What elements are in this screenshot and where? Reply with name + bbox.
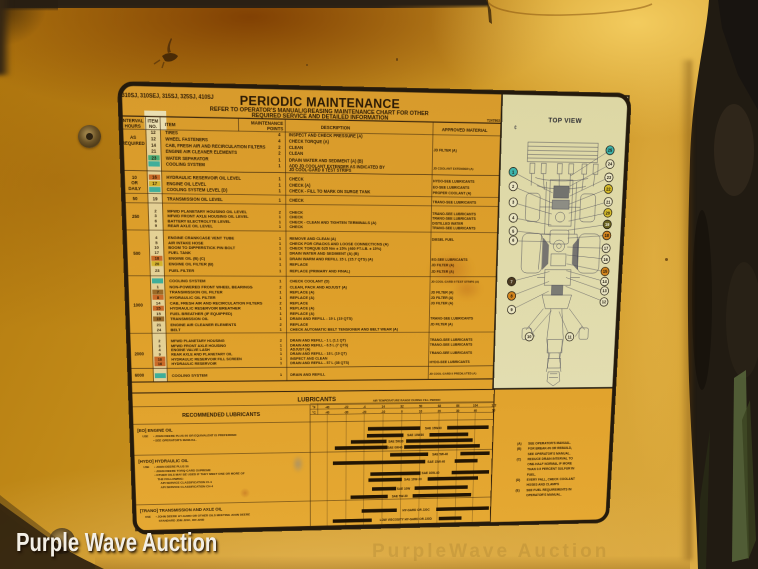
svg-text:21: 21	[157, 322, 162, 327]
svg-text:CAB, FRESH AIR AND RECIRCULATI: CAB, FRESH AIR AND RECIRCULATION FILTERS	[170, 301, 263, 306]
svg-text:SAE 15W40: SAE 15W40	[425, 426, 442, 430]
svg-text:20: 20	[606, 211, 611, 216]
svg-text:15: 15	[156, 311, 161, 316]
svg-text:TRANSMISSION OIL: TRANSMISSION OIL	[170, 317, 209, 322]
svg-text:CHECK: CHECK	[289, 177, 304, 182]
svg-text:POINTS: POINTS	[267, 126, 283, 131]
svg-text:-22: -22	[344, 405, 348, 409]
svg-text:-40: -40	[325, 411, 329, 415]
svg-text:15: 15	[156, 306, 161, 311]
svg-text:68: 68	[438, 404, 441, 408]
svg-text:-30: -30	[344, 411, 348, 415]
svg-text:32: 32	[400, 405, 403, 409]
svg-text:REPLACE (PRIMARY AND FINAL): REPLACE (PRIMARY AND FINAL)	[290, 269, 351, 274]
svg-text:HYDRAULIC RESERVOIR BREATHER: HYDRAULIC RESERVOIR BREATHER	[170, 306, 242, 311]
svg-text:REPLACE (A): REPLACE (A)	[290, 295, 315, 300]
svg-text:NO.: NO.	[149, 124, 157, 129]
svg-text:86: 86	[456, 404, 459, 407]
svg-text:ENGINE OIL (B) (C): ENGINE OIL (B) (C)	[168, 256, 205, 261]
svg-text:DRAIN AND REFILL - 57 L (38 QT: DRAIN AND REFILL - 57 L (38 QTS)	[290, 360, 349, 365]
svg-text:JD COOL-GARD II PREDILUTED (A): JD COOL-GARD II PREDILUTED (A)	[429, 372, 476, 376]
svg-text:-20: -20	[362, 411, 366, 415]
svg-text:122: 122	[491, 404, 496, 408]
svg-text:10: 10	[419, 410, 422, 414]
svg-text:• SEE OPERATOR'S MANUAL.: • SEE OPERATOR'S MANUAL.	[153, 438, 196, 442]
svg-text:11: 11	[568, 335, 573, 339]
svg-text:WHEEL FASTENERS: WHEEL FASTENERS	[165, 137, 208, 143]
svg-text:104: 104	[473, 404, 478, 408]
svg-text:FUEL BREATHER (IF EQUIPPED): FUEL BREATHER (IF EQUIPPED)	[170, 311, 233, 316]
svg-text:EO-SEE LUBRICANTS: EO-SEE LUBRICANTS	[433, 185, 470, 190]
svg-text:SAE 10W-30: SAE 10W-30	[404, 478, 422, 482]
svg-text:ENGINE OIL FILTER (B): ENGINE OIL FILTER (B)	[169, 261, 214, 266]
svg-text:REPLACE (A): REPLACE (A)	[290, 311, 315, 316]
svg-text:JD FILTER (A): JD FILTER (A)	[434, 148, 458, 153]
svg-text:TRANO-SEE LUBRICANTS: TRANO-SEE LUBRICANTS	[433, 200, 477, 205]
svg-text:SAE 0W40: SAE 0W40	[387, 446, 402, 450]
svg-text:CLEAN: CLEAN	[289, 145, 303, 150]
svg-text:TRANSMISSION OIL LEVEL: TRANSMISSION OIL LEVEL	[167, 197, 223, 202]
svg-text:REPLACE (A): REPLACE (A)	[290, 290, 315, 295]
svg-text:HYDRAULIC OIL FILTER: HYDRAULIC OIL FILTER	[170, 295, 217, 300]
svg-text:TRANO-SEE LUBRICANTS: TRANO-SEE LUBRICANTS	[430, 316, 473, 321]
svg-text:DAILY: DAILY	[128, 186, 141, 191]
svg-text:WATER SEPARATOR: WATER SEPARATOR	[166, 156, 209, 162]
svg-text:17: 17	[152, 181, 157, 186]
svg-text:20: 20	[438, 410, 441, 413]
svg-text:TRANO-SEE LUBRICANTS: TRANO-SEE LUBRICANTS	[430, 342, 473, 347]
svg-text:OR: OR	[131, 181, 138, 186]
svg-text:250: 250	[132, 214, 140, 219]
svg-text:HYDRAULIC RESERVOIR OIL LEVEL: HYDRAULIC RESERVOIR OIL LEVEL	[166, 175, 241, 181]
svg-text:RECOMMENDED LUBRICANTS: RECOMMENDED LUBRICANTS	[182, 412, 260, 418]
svg-text:25: 25	[608, 148, 613, 153]
svg-text:[EO] ENGINE OIL: [EO] ENGINE OIL	[137, 428, 173, 434]
svg-text:REPLACE: REPLACE	[290, 262, 308, 267]
svg-text:T247963: T247963	[487, 119, 500, 123]
svg-text:SAE 10W: SAE 10W	[397, 487, 411, 491]
svg-text:APPROVED MATERIAL: APPROVED MATERIAL	[442, 127, 488, 133]
svg-text:FUEL TANK: FUEL TANK	[168, 250, 191, 255]
svg-text:50: 50	[419, 405, 422, 409]
svg-text:SEE OPERATOR'S MANUAL.: SEE OPERATOR'S MANUAL.	[528, 441, 571, 445]
svg-text:REPLACE (A): REPLACE (A)	[290, 306, 315, 311]
svg-text:12: 12	[151, 130, 156, 135]
svg-text:14: 14	[151, 143, 156, 148]
svg-text:COOLING SYSTEM: COOLING SYSTEM	[172, 373, 208, 378]
svg-text:50: 50	[133, 196, 138, 201]
svg-text:SAE 10W-40: SAE 10W-40	[422, 471, 440, 475]
svg-text:(E): (E)	[515, 489, 520, 492]
svg-text:ITEM: ITEM	[147, 119, 158, 124]
svg-text:12: 12	[151, 136, 156, 141]
svg-text:21: 21	[606, 200, 611, 205]
svg-text:17: 17	[604, 246, 609, 251]
svg-text:COOLING SYSTEM LEVEL (D): COOLING SYSTEM LEVEL (D)	[167, 187, 228, 193]
svg-text:TRANO-SEE LUBRICANTS: TRANO-SEE LUBRICANTS	[432, 226, 476, 231]
svg-text:LUBRICANTS: LUBRICANTS	[297, 397, 336, 404]
svg-text:15: 15	[603, 269, 608, 273]
svg-text:COOLING SYSTEM: COOLING SYSTEM	[166, 162, 205, 167]
svg-text:PROPER COOLANT (A): PROPER COOLANT (A)	[433, 191, 472, 196]
svg-text:REPLACE: REPLACE	[290, 322, 308, 327]
svg-text:-40: -40	[325, 406, 329, 410]
svg-text:°C: °C	[312, 411, 316, 415]
svg-text:[HYDO] HYDRAULIC OIL: [HYDO] HYDRAULIC OIL	[138, 459, 188, 465]
svg-text:HOSES AND CLAMPS: HOSES AND CLAMPS	[526, 483, 559, 487]
svg-text:ITEM: ITEM	[165, 122, 176, 127]
svg-text:-10: -10	[381, 410, 385, 414]
svg-text:DRAIN AND REFILL: DRAIN AND REFILL	[290, 372, 325, 377]
svg-text:ENGINE AIR CLEANER ELEMENTS: ENGINE AIR CLEANER ELEMENTS	[170, 322, 236, 327]
svg-text:500: 500	[133, 251, 141, 256]
svg-text:0: 0	[401, 410, 403, 413]
svg-text:CHECK - FILL TO MARK ON SURGE: CHECK - FILL TO MARK ON SURGE TANK	[289, 189, 371, 195]
svg-text:AS: AS	[130, 135, 136, 140]
svg-text:REQUIRED: REQUIRED	[122, 141, 146, 146]
svg-text:24: 24	[157, 327, 162, 332]
svg-text:TRANO-SEE LUBRICANTS: TRANO-SEE LUBRICANTS	[430, 350, 473, 355]
svg-text:18: 18	[155, 256, 160, 261]
svg-text:¢: ¢	[514, 126, 517, 132]
svg-text:19: 19	[156, 317, 161, 322]
svg-text:50: 50	[492, 409, 495, 412]
svg-text:TRANSMISSION OIL FILTER: TRANSMISSION OIL FILTER	[169, 290, 223, 295]
svg-text:16: 16	[152, 175, 157, 180]
svg-text:17: 17	[154, 250, 159, 255]
svg-text:19: 19	[153, 197, 158, 202]
svg-text:ENGINE OIL LEVEL: ENGINE OIL LEVEL	[166, 181, 206, 186]
svg-text:40: 40	[474, 409, 477, 412]
svg-text:CHECK AUTOMATIC BELT TENSIONER: CHECK AUTOMATIC BELT TENSIONER AND BELT …	[290, 327, 399, 332]
svg-text:19: 19	[605, 222, 610, 227]
svg-text:23: 23	[155, 268, 160, 273]
svg-text:FUEL.: FUEL.	[527, 473, 536, 477]
svg-text:13: 13	[602, 289, 607, 293]
svg-text:23: 23	[607, 175, 612, 180]
svg-text:REPLACE: REPLACE	[290, 301, 308, 306]
svg-text:14: 14	[381, 405, 384, 409]
svg-text:USE: USE	[142, 435, 148, 439]
svg-text:JD FILTER (A): JD FILTER (A)	[430, 322, 453, 327]
svg-text:USE: USE	[143, 465, 149, 469]
svg-text:(C): (C)	[517, 458, 522, 461]
svg-text:14: 14	[156, 301, 161, 306]
svg-text:CHECK: CHECK	[289, 224, 304, 229]
svg-text:16: 16	[158, 362, 163, 367]
svg-text:FUEL FILTER: FUEL FILTER	[169, 268, 195, 273]
svg-text:14: 14	[602, 279, 607, 283]
svg-text:22: 22	[606, 187, 611, 192]
svg-text:HY-GARD OR J20C: HY-GARD OR J20C	[402, 508, 430, 512]
svg-text:CHECK COOLANT (D): CHECK COOLANT (D)	[290, 279, 330, 284]
svg-text:DRAIN WATER AND SEDIMENT (A) (: DRAIN WATER AND SEDIMENT (A) (B)	[290, 251, 360, 256]
svg-text:12: 12	[602, 300, 607, 304]
svg-text:30: 30	[456, 409, 459, 412]
svg-text:21: 21	[151, 149, 156, 154]
svg-text:CLEAN, PACK AND ADJUST (A): CLEAN, PACK AND ADJUST (A)	[290, 285, 348, 290]
svg-text:HYDRAULIC RESERVOIR: HYDRAULIC RESERVOIR	[171, 361, 216, 366]
svg-text:23: 23	[151, 155, 156, 160]
svg-text:18: 18	[605, 233, 610, 238]
svg-text:SAE 5W-30: SAE 5W-30	[392, 495, 408, 499]
svg-text:REAR AXLE OIL LEVEL: REAR AXLE OIL LEVEL	[168, 224, 214, 229]
svg-text:2000: 2000	[134, 352, 144, 357]
svg-text:HYDO-SEE LUBRICANTS: HYDO-SEE LUBRICANTS	[429, 360, 470, 365]
svg-text:JD COOL-GARD II TEST STRIPS: JD COOL-GARD II TEST STRIPS	[289, 167, 351, 173]
svg-text:DRAIN AND REFILL - 19 L (19 QT: DRAIN AND REFILL - 19 L (19 QTS)	[290, 316, 353, 321]
svg-text:(D): (D)	[516, 478, 521, 481]
svg-text:TOP VIEW: TOP VIEW	[548, 116, 582, 125]
svg-text:TIRES: TIRES	[165, 130, 178, 135]
svg-text:DIESEL FUEL: DIESEL FUEL	[432, 237, 455, 242]
svg-text:10: 10	[154, 245, 159, 250]
svg-text:CHECK TORQUE (A): CHECK TORQUE (A)	[289, 139, 330, 145]
svg-text:SAE 5W30: SAE 5W30	[388, 440, 403, 444]
svg-text:HYDO-SEE LUBRICANTS: HYDO-SEE LUBRICANTS	[433, 179, 475, 184]
svg-text:JD FILTER (A): JD FILTER (A)	[431, 295, 454, 300]
svg-text:24: 24	[608, 162, 613, 167]
svg-text:16: 16	[603, 257, 608, 262]
svg-text:JD COOLANT EXTENDER (A): JD COOLANT EXTENDER (A)	[433, 167, 473, 171]
svg-text:-4: -4	[363, 405, 366, 409]
svg-text:JD FILTER (A): JD FILTER (A)	[431, 301, 454, 306]
svg-text:SAE 5W-40: SAE 5W-40	[432, 453, 448, 457]
svg-text:CHECK: CHECK	[289, 198, 304, 203]
svg-text:10: 10	[132, 175, 137, 180]
svg-text:10: 10	[527, 335, 532, 339]
svg-text:CHECK (A): CHECK (A)	[289, 183, 311, 188]
svg-text:CLEAN: CLEAN	[289, 151, 303, 156]
svg-text:(B): (B)	[517, 447, 522, 450]
svg-text:BELT: BELT	[170, 327, 181, 332]
svg-text:HOURS: HOURS	[125, 123, 141, 128]
svg-text:COOLING SYSTEM: COOLING SYSTEM	[169, 279, 206, 284]
svg-text:6000: 6000	[135, 373, 145, 378]
svg-text:1000: 1000	[133, 303, 143, 308]
svg-text:SAE 10W30: SAE 10W30	[407, 434, 424, 438]
svg-text:DESCRIPTION: DESCRIPTION	[321, 125, 351, 130]
svg-text:(A): (A)	[517, 442, 522, 445]
svg-text:NON-POWERED FRONT WHEEL BEARIN: NON-POWERED FRONT WHEEL BEARINGS	[169, 285, 252, 290]
svg-text:JD FILTER (A): JD FILTER (A)	[431, 290, 454, 295]
svg-text:SAE 15W-40: SAE 15W-40	[427, 460, 445, 464]
svg-text:USE: USE	[145, 515, 151, 519]
svg-text:20: 20	[155, 261, 160, 266]
